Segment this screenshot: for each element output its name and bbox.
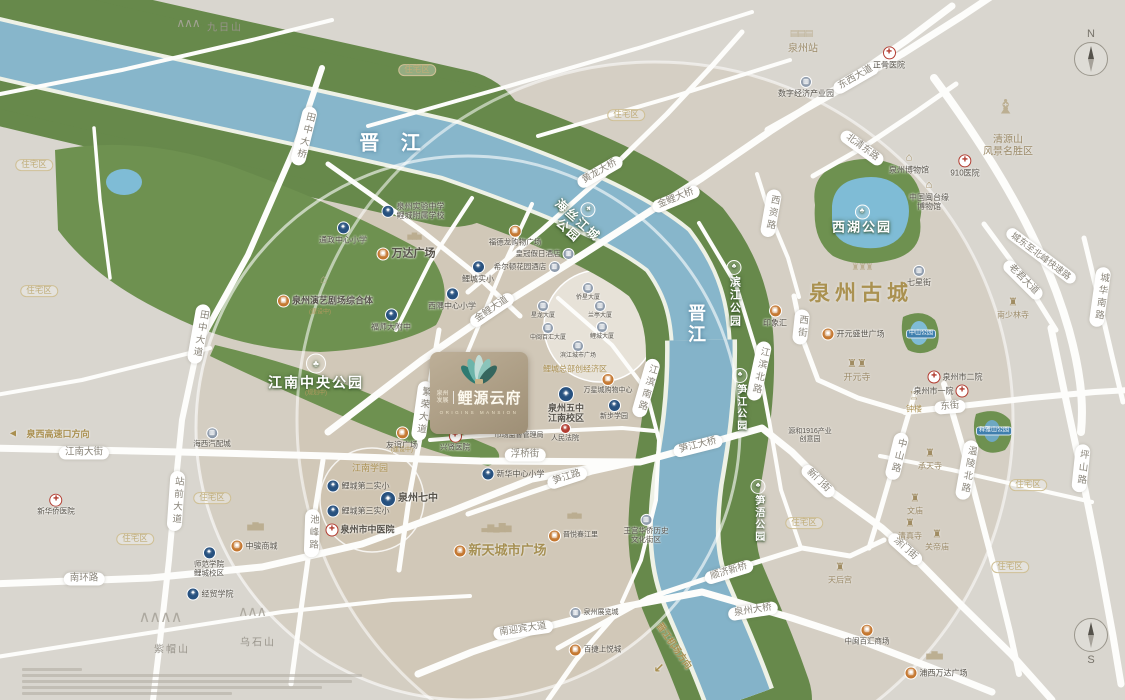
legal-fine-print [22, 668, 362, 695]
property-logo-icon [456, 354, 502, 386]
property-badge: 泉州发展 鲤源云府 ORIGINS MANSION [430, 352, 528, 434]
badge-divider [453, 391, 454, 404]
property-name: 鲤源云府 [458, 387, 522, 408]
compass-north: N [1074, 28, 1108, 76]
developer-brand: 泉州发展 [436, 391, 448, 404]
compass-north-label: N [1087, 28, 1095, 40]
compass-south-label: S [1087, 654, 1094, 666]
compass-south: S [1074, 618, 1108, 666]
property-name-en: ORIGINS MANSION [440, 410, 519, 415]
compass-south-icon [1074, 618, 1108, 652]
quanzhou-property-location-map: 泉州发展 鲤源云府 ORIGINS MANSION N S 田中大桥田中大道站前… [0, 0, 1125, 700]
compass-north-icon [1074, 42, 1108, 76]
map-base-art [0, 0, 1125, 700]
